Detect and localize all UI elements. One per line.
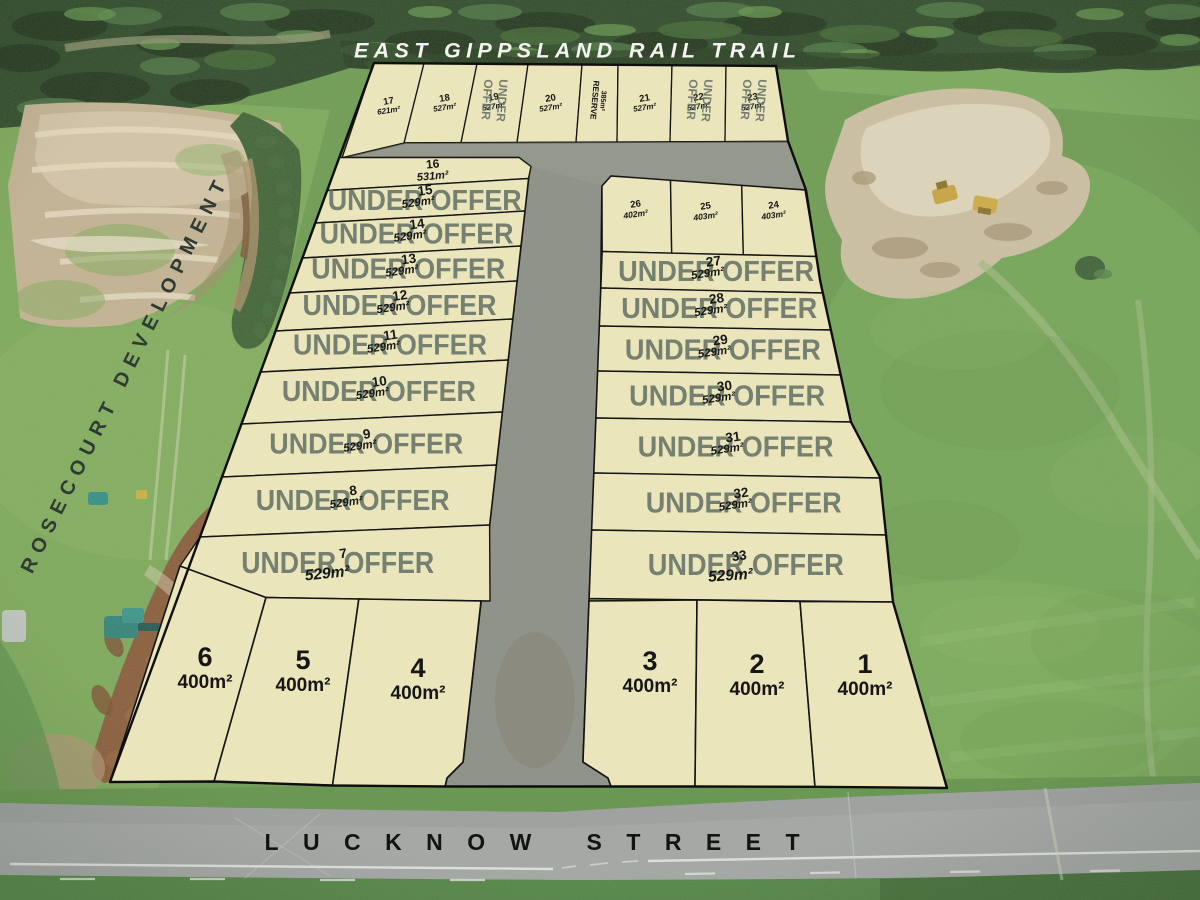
- svg-text:33: 33: [731, 547, 748, 564]
- svg-text:UNDER: UNDER: [493, 79, 510, 123]
- svg-text:5: 5: [295, 645, 310, 675]
- svg-text:400m²: 400m²: [838, 679, 893, 700]
- svg-text:UNDER: UNDER: [752, 79, 769, 123]
- svg-text:400m²: 400m²: [623, 676, 678, 697]
- svg-text:400m²: 400m²: [730, 679, 785, 700]
- svg-text:400m²: 400m²: [391, 683, 446, 704]
- svg-text:2: 2: [749, 649, 764, 679]
- svg-text:4: 4: [410, 653, 425, 683]
- svg-text:3: 3: [642, 646, 657, 676]
- svg-text:EAST GIPPSLAND RAIL TRAIL: EAST GIPPSLAND RAIL TRAIL: [354, 39, 796, 63]
- svg-text:OFFER: OFFER: [684, 79, 701, 121]
- svg-text:OFFER: OFFER: [479, 79, 496, 121]
- svg-text:400m²: 400m²: [178, 672, 233, 693]
- svg-text:529m²: 529m²: [708, 566, 755, 586]
- svg-text:OFFER: OFFER: [738, 79, 755, 121]
- svg-text:UNDER: UNDER: [698, 79, 715, 123]
- svg-text:6: 6: [197, 642, 212, 672]
- svg-text:1: 1: [857, 649, 872, 679]
- svg-text:400m²: 400m²: [276, 675, 331, 696]
